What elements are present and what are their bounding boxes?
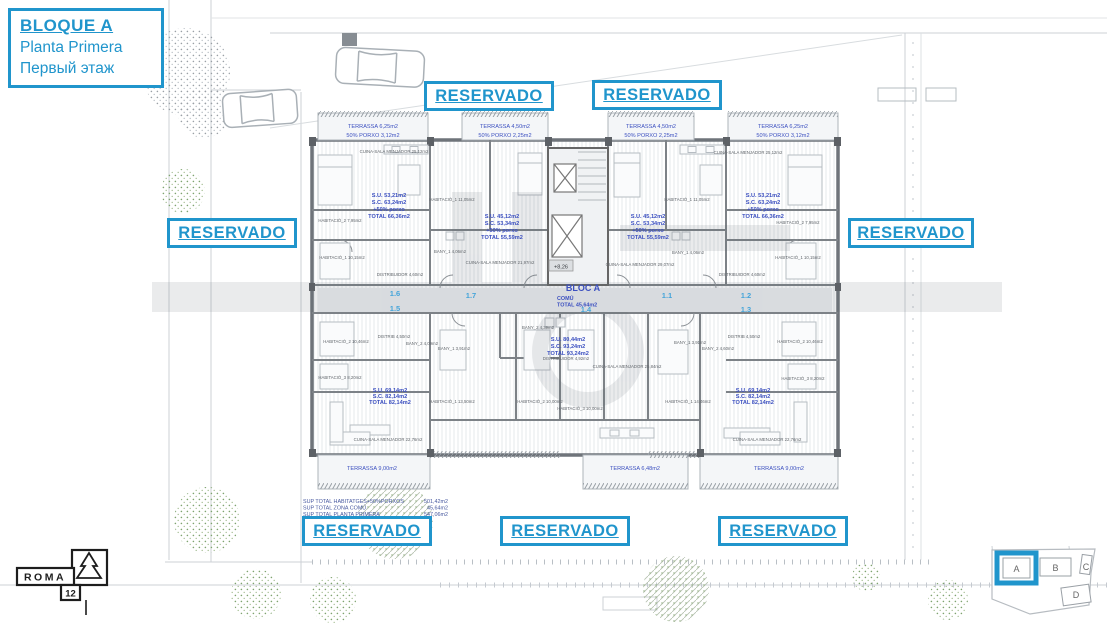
- room-label: HABITACIÓ_2 10,00m2: [517, 399, 563, 404]
- car-top: [335, 47, 425, 88]
- block-letter: D: [1073, 590, 1080, 600]
- stat-line: S.U. 45,12m2: [485, 214, 520, 220]
- room-label: HABITACIÓ_2 10,46m2: [777, 339, 823, 344]
- stat-line: S.U. 80,44m2: [551, 337, 586, 343]
- floorplan-page: TERRASSA 6,25m2 50% PORXO 3,12m2 TERRASS…: [0, 0, 1107, 623]
- level-marker: +8,26: [554, 265, 568, 271]
- block-option-c[interactable]: C: [1080, 554, 1093, 574]
- stat-line: TOTAL 66,36m2: [368, 214, 410, 220]
- room-label: DISTRIBUIDOR 4,92m2: [543, 356, 590, 361]
- room-label: DISTRIB 4,50m2: [378, 334, 411, 339]
- total-value: 501,42m2: [424, 499, 448, 505]
- room-label: BANY_1 4,06m2: [434, 249, 467, 254]
- room-label: DISTRIBUIDOR 4,60m2: [719, 272, 766, 277]
- reservado-badge-right[interactable]: RESERVADO: [848, 218, 974, 248]
- stat-line: +50% porxo: [632, 228, 664, 234]
- stat-line: S.U. 53,21m2: [746, 193, 781, 199]
- reservado-badge-bottom-right[interactable]: RESERVADO: [718, 516, 848, 546]
- terrace-label: 50% PORXO 2,25m2: [478, 133, 531, 139]
- room-label: CUINA-SALA MENJADOR 22,76m2: [354, 437, 423, 442]
- room-label: CUINA-SALA MENJADOR 22,76m2: [733, 437, 802, 442]
- block-title: BLOQUE A: [20, 16, 152, 36]
- terrace-label: TERRASSA 4,50m2: [480, 124, 530, 130]
- reservado-badge-top-left[interactable]: RESERVADO: [424, 81, 554, 111]
- unit-number: 1.3: [741, 305, 751, 314]
- room-label: HABITACIÓ_2 7,95m2: [318, 218, 362, 223]
- room-label: HABITACIÓ_3 8,20m2: [781, 376, 825, 381]
- floor-title-es: Planta Primera: [20, 39, 152, 57]
- logo-name: ROMA: [24, 572, 66, 584]
- room-label: HABITACIÓ_1 13,50m2: [429, 399, 475, 404]
- total-label: SUP TOTAL ZONA COMÚ: [303, 505, 366, 512]
- room-label: BANY_1 4,06m2: [672, 250, 705, 255]
- stat-line: S.C. 53,34m2: [485, 221, 520, 227]
- terrace-label: 50% PORXO 2,25m2: [624, 133, 677, 139]
- plan-title-box: BLOQUE A Planta Primera Первый этаж: [8, 8, 164, 88]
- room-label: HABITACIÓ_1 11,05m2: [429, 197, 475, 202]
- reservado-badge-left[interactable]: RESERVADO: [167, 218, 297, 248]
- room-label: HABITACIÓ_1 11,05m2: [664, 197, 710, 202]
- room-label: CUINA-SALA MENJADOR 25,12m2: [360, 149, 429, 154]
- room-label: CUINA-SALA MENJADOR 25,84m2: [593, 364, 662, 369]
- stat-line: S.C. 63,24m2: [372, 200, 407, 206]
- room-label: CUINA-SALA MENJADOR 21,97m2: [466, 260, 535, 265]
- room-label: CUINA-SALA MENJADOR 25,12m2: [714, 150, 783, 155]
- unit-number: 1.4: [581, 305, 592, 314]
- reservado-badge-bottom-left[interactable]: RESERVADO: [302, 516, 432, 546]
- room-label: BANY_1 3,91m2: [674, 340, 707, 345]
- stat-line: S.C. 63,24m2: [746, 200, 781, 206]
- room-label: HABITACIÓ_3 10,00m2: [557, 406, 603, 411]
- room-label: BANY_1 3,91m2: [438, 346, 471, 351]
- room-label: HABITACIÓ_1 10,15m2: [319, 255, 365, 260]
- room-label: BANY_2 4,39m2: [522, 325, 555, 330]
- room-label: DISTRIB 4,50m2: [728, 334, 761, 339]
- reservado-badge-top-right[interactable]: RESERVADO: [592, 80, 722, 110]
- room-label: BANY_2 4,09m2: [406, 341, 439, 346]
- terrace-label: TERRASSA 6,25m2: [348, 124, 398, 130]
- comu-label: COMÚ: [557, 295, 574, 302]
- room-label: HABITACIÓ_2 7,95m2: [776, 220, 820, 225]
- block-letter: C: [1083, 562, 1090, 572]
- terrace-label: TERRASSA 9,00m2: [754, 466, 804, 472]
- terrace-label: TERRASSA 4,50m2: [626, 124, 676, 130]
- unit-number: 1.6: [390, 289, 400, 298]
- room-label: HABITACIÓ_1 10,15m2: [775, 255, 821, 260]
- logo-number: 12: [65, 589, 76, 600]
- reservado-badge-bottom-center[interactable]: RESERVADO: [500, 516, 630, 546]
- stat-line: TOTAL 82,14m2: [732, 400, 774, 406]
- block-letter: B: [1052, 563, 1058, 573]
- unit-number: 1.2: [741, 291, 751, 300]
- stat-line: S.C. 53,34m2: [631, 221, 666, 227]
- block-letter: A: [1013, 564, 1019, 574]
- stat-line: S.U. 45,12m2: [631, 214, 666, 220]
- block-selector: A B C D: [992, 549, 1095, 614]
- unit-number: 1.7: [466, 291, 476, 300]
- total-label: SUP TOTAL HABITATGES+50%PORXOS: [303, 499, 404, 505]
- stat-line: TOTAL 55,59m2: [627, 235, 669, 241]
- room-label: DISTRIBUIDOR 4,60m2: [377, 272, 424, 277]
- unit-number: 1.5: [390, 304, 400, 313]
- room-label: CUINA-SALA MENJADOR 29,07m2: [606, 262, 675, 267]
- room-label: HABITACIÓ_3 8,20m2: [318, 375, 362, 380]
- block-option-d[interactable]: D: [1061, 584, 1091, 606]
- room-label: HABITACIÓ_1 14,46m2: [665, 399, 711, 404]
- stat-line: TOTAL 82,14m2: [369, 400, 411, 406]
- block-option-a[interactable]: A: [997, 553, 1036, 583]
- stat-line: +50% porxo: [373, 207, 405, 213]
- car-left: [222, 89, 298, 128]
- terrace-label: TERRASSA 9,00m2: [347, 466, 397, 472]
- unit-number: 1.1: [662, 291, 672, 300]
- stat-line: S.C. 93,24m2: [551, 344, 586, 350]
- bloc-a-label: BLOC A: [566, 283, 601, 293]
- terrace-label: 50% PORXO 3,12m2: [346, 133, 399, 139]
- stat-line: +50% porxo: [486, 228, 518, 234]
- stat-line: S.U. 53,21m2: [372, 193, 407, 199]
- terrace-label: TERRASSA 6,48m2: [610, 466, 660, 472]
- stat-line: TOTAL 55,59m2: [481, 235, 523, 241]
- room-label: BANY_2 4,60m2: [702, 346, 735, 351]
- floor-title-ru: Первый этаж: [20, 60, 152, 78]
- block-option-b[interactable]: B: [1040, 558, 1071, 576]
- room-label: HABITACIÓ_2 10,46m2: [323, 339, 369, 344]
- terrace-label: 50% PORXO 3,12m2: [756, 133, 809, 139]
- terrace-label: TERRASSA 6,25m2: [758, 124, 808, 130]
- roma12-logo: ROMA 12: [17, 550, 107, 615]
- stat-line: +50% porxo: [747, 207, 779, 213]
- total-value: 45,64m2: [427, 506, 448, 512]
